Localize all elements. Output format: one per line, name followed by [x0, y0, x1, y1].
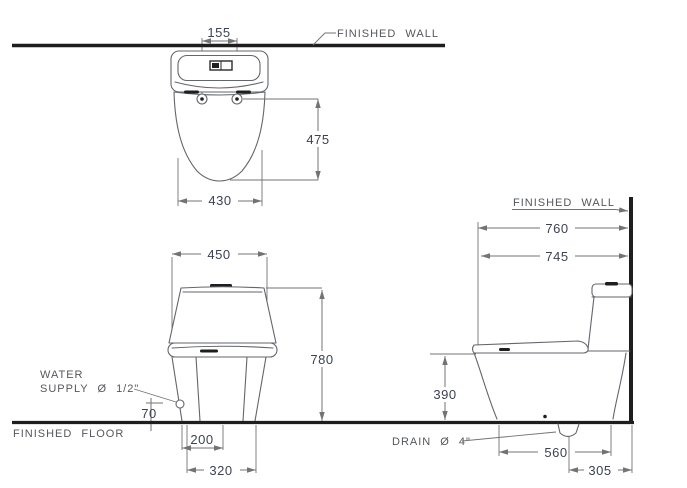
- pedestal-left-outer: [172, 357, 182, 421]
- dim-base-width: 320: [209, 463, 232, 478]
- dim-depth: 760: [545, 221, 568, 236]
- side-view: FINISHED WALL 760 745 390 DRAIN Ø 4": [392, 197, 632, 478]
- top-view: 155 FINISHED WALL 475 430: [12, 25, 445, 208]
- bolt-cap-right-dot: [235, 97, 239, 101]
- water-supply-label-line1: WATER: [40, 369, 84, 381]
- bowl-back-side: [613, 353, 626, 419]
- dim-bowl-height: 390: [433, 387, 456, 402]
- dim-supply-height: 70: [141, 406, 156, 421]
- finished-wall-top-label: FINISHED WALL: [337, 28, 439, 40]
- pedestal-right-inner: [243, 357, 247, 421]
- finished-wall-right-arrow: [615, 210, 628, 212]
- dim-trap-width: 200: [190, 432, 213, 447]
- tank-outline-plan: [171, 51, 268, 92]
- finished-wall-top-leader: [313, 33, 336, 45]
- water-supply-leader: [134, 389, 176, 402]
- flush-button-left-cell: [212, 63, 219, 68]
- technical-drawing: 155 FINISHED WALL 475 430: [0, 0, 687, 488]
- seat-hinge-right: [236, 91, 251, 94]
- finished-floor-label: FINISHED FLOOR: [13, 428, 124, 440]
- dim-bowl-width: 430: [208, 193, 231, 208]
- dim-bolt-spacing: 155: [207, 25, 230, 40]
- dim-drain-set-out: 305: [588, 463, 611, 478]
- water-supply-point: [176, 400, 184, 408]
- dim-base-depth: 560: [544, 445, 567, 460]
- front-view: 450 780 WATER SUPPLY Ø 1/2" 70 FINISHED …: [12, 247, 634, 478]
- dim-depth-to-front: 475: [306, 132, 329, 147]
- seat-hinge-left: [184, 91, 199, 94]
- bowl-front-side: [474, 353, 497, 419]
- drain-outlet: [558, 424, 579, 437]
- dim-height: 780: [310, 352, 333, 367]
- tank-lid-button-side: [605, 282, 618, 286]
- water-supply-label-line2: SUPPLY Ø 1/2": [40, 383, 139, 395]
- tank-front: [169, 287, 276, 343]
- seat-side: [473, 341, 589, 353]
- seat-dash-side: [499, 348, 510, 351]
- pedestal-right-outer: [255, 357, 266, 421]
- seat-dash-front: [200, 350, 218, 353]
- bolt-cap-left-dot: [200, 97, 204, 101]
- drain-leader: [462, 432, 556, 441]
- dim-depth-to-seat: 745: [545, 249, 568, 264]
- tank-front-side: [588, 297, 594, 349]
- finished-wall-right-label: FINISHED WALL: [513, 197, 615, 209]
- tank-lid-side: [592, 284, 632, 297]
- seat-front: [168, 343, 277, 357]
- pedestal-left-inner: [196, 357, 200, 421]
- bowl-dot: [543, 415, 547, 419]
- toilet-dimension-diagram: 155 FINISHED WALL 475 430: [0, 0, 687, 488]
- bowl-outline-plan: [174, 92, 265, 181]
- dim-tank-width: 450: [207, 247, 230, 262]
- drain-label: DRAIN Ø 4": [392, 436, 471, 448]
